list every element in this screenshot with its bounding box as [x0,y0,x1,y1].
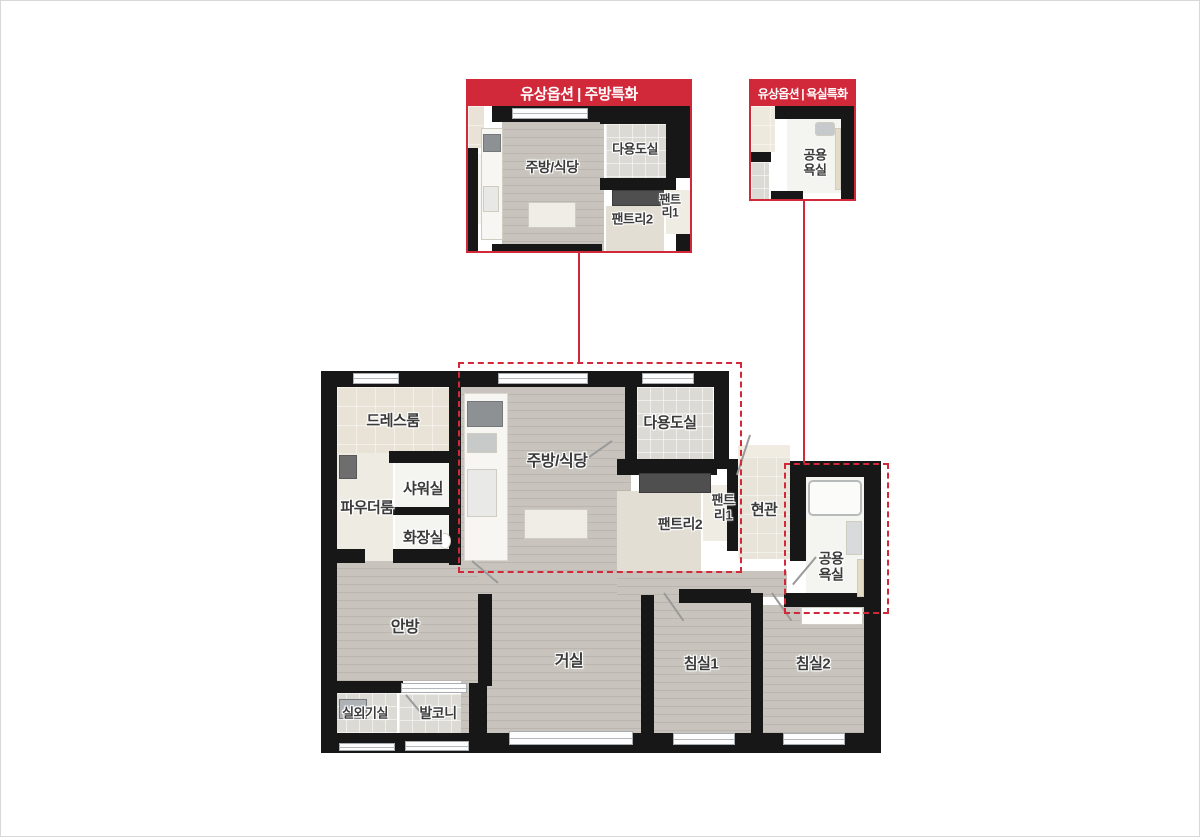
kitchen-option-inset: 유상옵션 | 주방특화 [466,79,692,253]
window [405,741,469,751]
room-label-pantry2: 팬트리2 [658,517,702,533]
inset-room-label-bath: 공용 욕실 [804,148,827,177]
mini-wall [600,178,676,190]
bath-option-inset-plan [751,106,854,199]
inset-room-label-bath-line2: 욕실 [804,162,827,177]
mini-pantry-cabinet [612,190,664,206]
wall-living-bed1 [641,595,654,735]
window [339,743,395,751]
kitchen-option-inset-title: 유상옵션 | 주방특화 [468,81,690,106]
room-label-living: 거실 [555,653,583,671]
kitchen-inset-connector-line [578,253,580,362]
room-label-balcony: 발코니 [419,706,456,722]
window [783,733,845,745]
window [353,373,399,384]
wall-balcony-right [469,683,487,735]
inset-room-label-bath-line1: 공용 [804,147,827,162]
wall-master-living [478,594,492,686]
bath-inset-connector-line [803,201,805,463]
wall-bed1-top [679,589,751,603]
mini-wall [492,244,602,251]
mini-kitchen-floor [502,122,604,251]
room-label-bed2: 침실2 [796,657,830,674]
floorplan-page: 드레스룸 파우더룸 샤워실 화장실 주방/식당 다용도실 팬트리2 팬트 리1 … [0,0,1200,837]
mini-fridge-icon [483,134,501,152]
mini-kitchen-sink [483,186,499,212]
bath-option-inset-title: 유상옵션 | 욕실특화 [751,81,854,106]
room-label-outdoor: 실외기실 [342,707,388,722]
window [401,683,467,693]
wall-block-bottom-a [331,549,365,563]
inset-room-label-pantry1: 팬트 리1 [659,194,680,221]
room-label-bath: 공용 욕실 [819,551,844,582]
room-label-toilet: 화장실 [403,531,443,548]
wall-dress-shower [389,451,454,463]
mini-wall [751,152,771,162]
bath-option-inset: 유상옵션 | 욕실특화 [749,79,856,201]
room-label-kitchen: 주방/식당 [527,453,588,471]
inset-room-label-pantry2: 팬트리2 [611,213,652,228]
mini-wall [771,191,803,199]
mini-wall [676,234,690,251]
window [509,731,633,745]
wall-block-bottom-b [393,549,459,563]
inset-room-label-kitchen: 주방/식당 [526,160,579,176]
room-label-entry: 현관 [751,503,778,520]
bath-option-dashed-box [784,463,889,614]
mini-window [512,108,588,119]
room-label-utility: 다용도실 [643,416,696,433]
room-label-bed1: 침실1 [684,657,718,674]
powder-closet [339,455,357,479]
mini-shower-icon [815,122,835,136]
inset-room-label-pantry1-line2: 리1 [662,206,679,220]
kitchen-option-inset-plan [468,106,690,251]
wall-bed1-bed2 [751,593,763,735]
room-label-dress: 드레스룸 [366,414,419,431]
room-label-bath-line2: 욕실 [819,566,844,582]
mini-wall [468,148,478,251]
room-label-master: 안방 [391,619,419,637]
mini-wall [600,106,690,124]
kitchen-option-dashed-box [458,362,742,573]
window [673,733,735,745]
mini-wall [666,124,690,178]
wall-master-bottom [321,681,403,693]
room-label-powder: 파우더룸 [340,501,393,518]
room-label-bath-line1: 공용 [819,550,844,566]
mini-floor [751,162,769,199]
mini-kitchen-island [528,202,576,228]
room-label-pantry1-line2: 리1 [714,507,732,522]
room-label-pantry1-line1: 팬트 [712,492,735,507]
inset-room-label-pantry1-line1: 팬트 [659,193,680,207]
mini-wall [775,106,854,119]
mini-wall [841,119,854,199]
wall-shower-toilet [393,507,454,515]
inset-room-label-utility: 다용도실 [612,143,658,158]
mini-entry-floor [751,106,775,152]
room-label-shower: 샤워실 [403,482,443,499]
room-label-pantry1: 팬트 리1 [712,493,735,522]
